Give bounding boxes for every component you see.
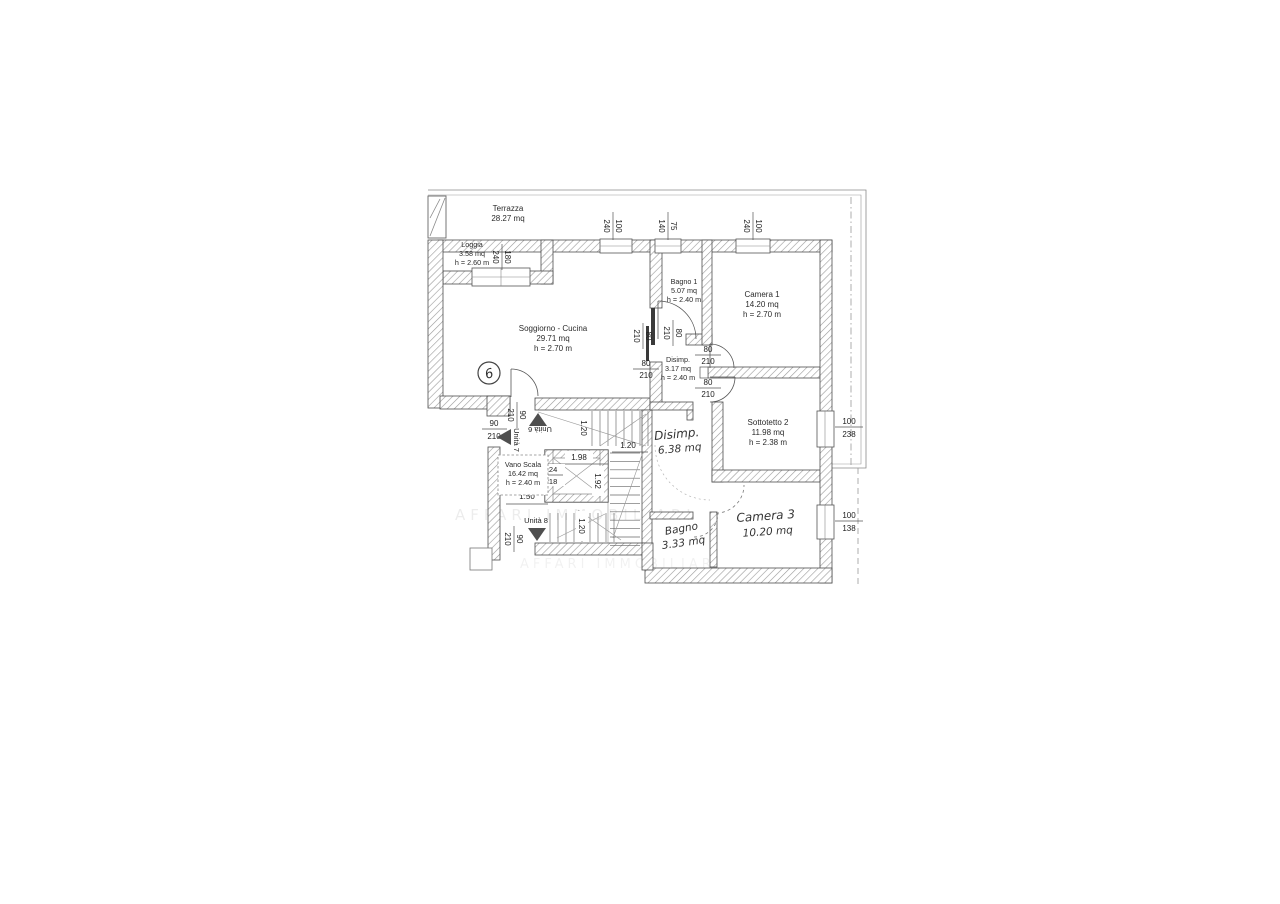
dim-door-bagno1: 80 210 — [662, 320, 683, 346]
wall-sottotetto-camera3 — [712, 470, 820, 482]
wall-soggiorno-bottom-right — [535, 398, 650, 410]
svg-text:100: 100 — [842, 417, 856, 426]
wall-corridor-right — [642, 410, 652, 557]
floorplan-page: AFFARI IMMOBILIARI AFFARI IMMOBILIARI — [0, 0, 1280, 904]
stairs-right-flight — [610, 453, 640, 545]
window-camera1-top — [736, 239, 770, 253]
label-camera1: Camera 1 14.20 mq h = 2.70 m — [743, 290, 781, 319]
svg-text:210: 210 — [639, 371, 653, 380]
svg-text:80: 80 — [642, 359, 651, 368]
svg-text:29.71 mq: 29.71 mq — [536, 334, 569, 343]
svg-text:10.20 mq: 10.20 mq — [742, 524, 793, 540]
svg-text:Camera 3: Camera 3 — [736, 507, 795, 525]
svg-text:80: 80 — [674, 329, 683, 338]
svg-text:210: 210 — [662, 326, 671, 340]
wall-bagno2-top — [650, 512, 693, 519]
svg-text:210: 210 — [701, 357, 715, 366]
wall-stair-jog — [642, 543, 653, 570]
svg-text:Bagno 1: Bagno 1 — [671, 277, 698, 286]
svg-text:5.07 mq: 5.07 mq — [671, 286, 697, 295]
window-sottotetto-right — [817, 411, 834, 447]
svg-text:6.38 mq: 6.38 mq — [657, 441, 702, 457]
svg-text:240: 240 — [742, 219, 751, 233]
label-disimp2: Disimp. 6.38 mq — [653, 425, 702, 457]
dim-120-right: 1.20 — [620, 441, 636, 450]
svg-text:90: 90 — [515, 535, 524, 544]
svg-text:238: 238 — [842, 430, 856, 439]
label-sottotetto2: Sottotetto 2 11.98 mq h = 2.38 m — [748, 418, 789, 447]
svg-text:100: 100 — [614, 219, 623, 233]
wall-bottom — [645, 568, 832, 583]
wall-bagno1-camera1 — [702, 240, 712, 345]
svg-text:90: 90 — [490, 419, 499, 428]
floorplan-drawing: AFFARI IMMOBILIARI AFFARI IMMOBILIARI — [0, 0, 1280, 904]
dim-door-unita8: 90 210 — [503, 526, 524, 552]
wall-corridor-stub — [687, 410, 693, 420]
label-camera3: Camera 3 10.20 mq — [736, 507, 795, 540]
svg-text:100: 100 — [754, 219, 763, 233]
svg-text:210: 210 — [701, 390, 715, 399]
dim-window-camera1: 100 240 — [742, 212, 763, 240]
svg-text:3.17 mq: 3.17 mq — [665, 364, 691, 373]
svg-text:h = 2.40 m: h = 2.40 m — [506, 478, 540, 487]
label-bagno1: Bagno 1 5.07 mq h = 2.40 m — [667, 277, 701, 304]
svg-text:90: 90 — [518, 411, 527, 420]
svg-text:Sottotetto 2: Sottotetto 2 — [748, 418, 789, 427]
svg-text:3.58 mq: 3.58 mq — [459, 249, 485, 258]
wall-bagno2-camera3 — [710, 512, 717, 567]
svg-text:210: 210 — [506, 408, 515, 422]
label-vano-scala: Vano Scala 16.42 mq h = 2.40 m — [498, 455, 548, 495]
wall-jamb — [700, 367, 708, 378]
svg-text:16.42 mq: 16.42 mq — [508, 469, 538, 478]
label-bagno2: Bagno 3.33 mq — [661, 520, 706, 552]
door-camera3-dashed — [716, 485, 744, 513]
wall-camera1-sottotetto — [708, 367, 820, 378]
dim-120-bottom: 1.20 — [577, 518, 586, 534]
unita7-label: Unità 7 — [512, 428, 521, 452]
svg-text:80: 80 — [704, 345, 713, 354]
label-terrazza: Terrazza 28.27 mq — [491, 204, 524, 223]
svg-text:h = 2.40 m: h = 2.40 m — [667, 295, 701, 304]
unit-circle-6-label: 6 — [483, 366, 495, 383]
svg-text:80: 80 — [644, 332, 653, 341]
dim-192: 1.92 — [593, 473, 602, 489]
wall-corridor-top — [650, 402, 693, 410]
svg-text:100: 100 — [842, 511, 856, 520]
dim-198: 1.98 — [571, 453, 587, 462]
unita8-arrow-icon — [528, 528, 546, 541]
svg-text:28.27 mq: 28.27 mq — [491, 214, 524, 223]
svg-text:h = 2.70 m: h = 2.70 m — [534, 344, 572, 353]
dim-sliding-door: 80 210 — [632, 323, 653, 349]
window-loggia — [472, 268, 530, 286]
svg-text:240: 240 — [491, 250, 500, 264]
window-soggiorno-top — [600, 239, 632, 253]
dim-window-camera3: 100 138 — [835, 511, 863, 533]
svg-text:240: 240 — [602, 219, 611, 233]
unita6-label: Unità 6 — [528, 425, 552, 434]
svg-text:h = 2.40 m: h = 2.40 m — [661, 373, 695, 382]
svg-text:14.20 mq: 14.20 mq — [745, 300, 778, 309]
window-bagno1-top — [655, 239, 681, 253]
wall-left — [428, 240, 443, 408]
svg-text:210: 210 — [503, 532, 512, 546]
svg-text:Camera 1: Camera 1 — [744, 290, 780, 299]
svg-text:80: 80 — [704, 378, 713, 387]
dim-window-sottotetto: 100 238 — [835, 417, 863, 439]
svg-text:Soggiorno - Cucina: Soggiorno - Cucina — [519, 324, 588, 333]
svg-text:h = 2.38 m: h = 2.38 m — [749, 438, 787, 447]
svg-text:h = 2.70 m: h = 2.70 m — [743, 310, 781, 319]
dim-door-camera1: 80 210 — [695, 345, 721, 366]
label-disimp1: Disimp. 3.17 mq h = 2.40 m — [661, 355, 695, 382]
svg-text:Vano Scala: Vano Scala — [505, 460, 541, 469]
svg-text:210: 210 — [632, 329, 641, 343]
unita8-label: Unità 8 — [524, 516, 548, 525]
svg-text:h = 2.60 m: h = 2.60 m — [455, 258, 489, 267]
dim-window-soggiorno: 100 240 — [602, 212, 623, 240]
svg-text:11.98 mq: 11.98 mq — [752, 428, 785, 437]
dim-120-top: 1.20 — [579, 420, 588, 436]
svg-text:Disimp.: Disimp. — [666, 355, 690, 364]
unita6-arrow-icon — [529, 413, 547, 426]
terrace-pillar — [428, 196, 446, 238]
svg-text:Disimp.: Disimp. — [653, 425, 699, 443]
svg-text:75: 75 — [669, 222, 678, 231]
svg-text:Loggia: Loggia — [461, 240, 483, 249]
door-unita6 — [511, 369, 538, 397]
unit-circle-6: 6 — [478, 362, 500, 384]
dim-door-sottotetto: 80 210 — [695, 378, 721, 399]
svg-text:180: 180 — [503, 250, 512, 264]
svg-text:138: 138 — [842, 524, 856, 533]
wall-flue — [470, 548, 492, 570]
window-camera3-right — [817, 505, 834, 539]
svg-text:140: 140 — [657, 219, 666, 233]
wall-stair-bottom — [535, 543, 645, 555]
svg-text:Terrazza: Terrazza — [493, 204, 524, 213]
dim-window-bagno1: 75 140 — [657, 212, 678, 240]
label-soggiorno: Soggiorno - Cucina 29.71 mq h = 2.70 m — [519, 324, 588, 353]
